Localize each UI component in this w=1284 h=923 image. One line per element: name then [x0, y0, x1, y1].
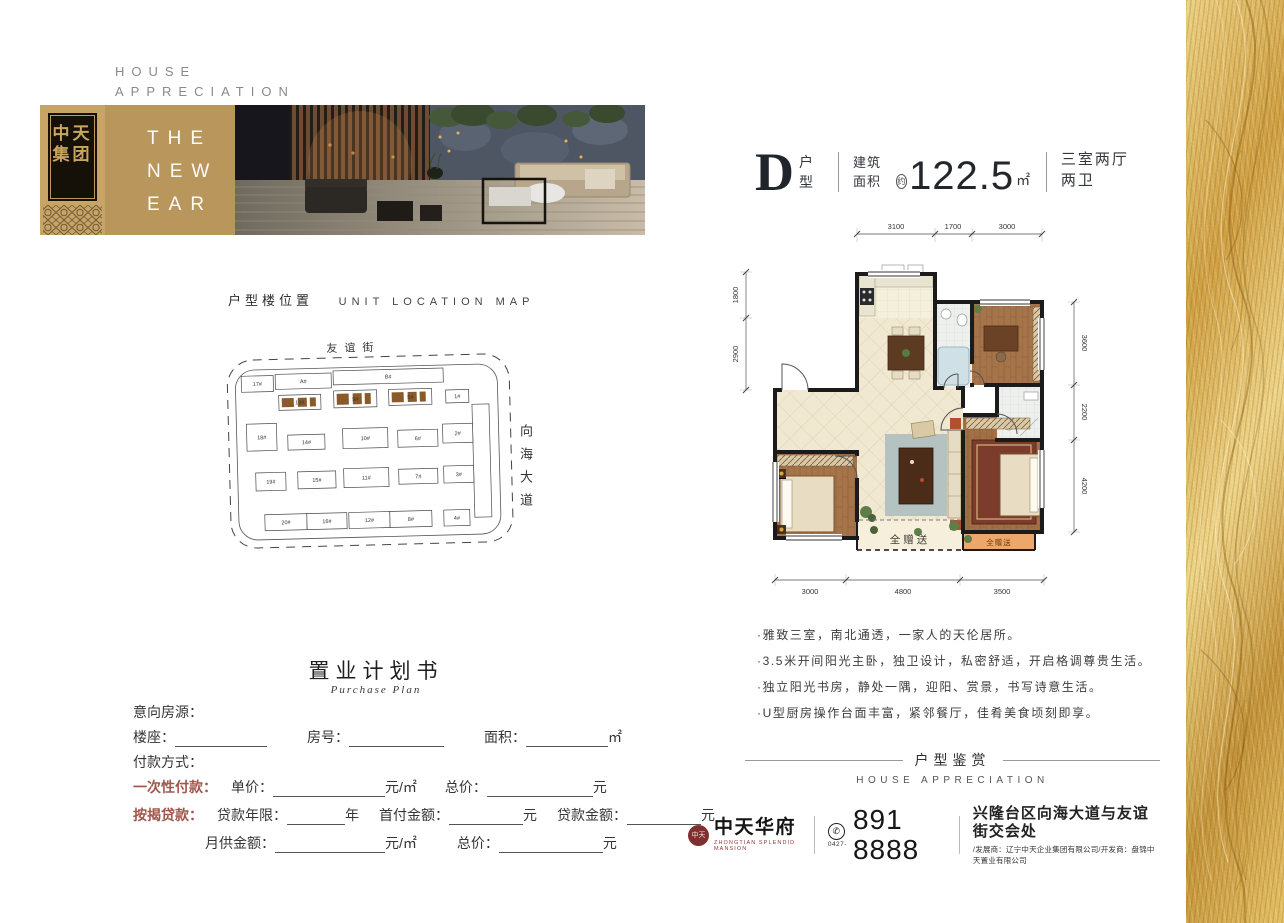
street-right-label: 向海大道	[516, 424, 535, 534]
approx-badge: 约	[896, 174, 907, 189]
street-top-label: 友谊街	[326, 340, 380, 355]
divider-line	[745, 760, 903, 761]
divider	[838, 152, 839, 192]
map-building-label: 18#	[257, 435, 267, 441]
svg-text:4200: 4200	[1080, 478, 1089, 495]
brand-seal: 中天	[688, 825, 709, 846]
down-payment-field	[449, 809, 523, 825]
svg-text:3600: 3600	[1080, 335, 1089, 352]
banner-line1: THE	[147, 128, 212, 150]
phone-number: 891 8888	[853, 805, 946, 865]
kicker-line1: HOUSE	[115, 62, 295, 82]
monthly-label: 月供金额：	[205, 835, 275, 851]
map-building-label: 13#	[295, 400, 305, 406]
map-building-label: A#	[300, 379, 308, 385]
gift-label-center: 全赠送	[890, 533, 931, 546]
brand-logo-seal: 中天 集团	[47, 112, 98, 202]
phone-block: ✆ 0427- 891 8888	[828, 805, 946, 865]
map-building-highlight	[310, 397, 316, 406]
svg-text:1700: 1700	[945, 222, 962, 231]
svg-text:4800: 4800	[895, 587, 912, 596]
yuan-per-sqm: 元/㎡	[385, 779, 417, 795]
address-block: 兴隆台区向海大道与友谊街交会处 /发展商：辽宁中天企业集团有限公司/开发商：盘锦…	[973, 805, 1162, 866]
onetime-row: 一次性付款：单价：元/㎡总价：元	[133, 777, 607, 797]
map-building-label: 2#	[455, 431, 462, 437]
loan-years-label: 贷款年限：	[217, 807, 287, 823]
feature-item: ·独立阳光书房，静处一隅，迎阳、赏景，书写诗意生活。	[757, 674, 1157, 700]
map-title: 户型楼位置 UNIT LOCATION MAP	[228, 290, 534, 309]
gold-swirl-texture	[1186, 0, 1284, 923]
room-label: 房号：	[307, 729, 349, 745]
map-building-highlight	[337, 394, 349, 405]
feature-item: ·U型厨房操作台面丰富，紧邻餐厅，佳肴美食顷刻即享。	[757, 700, 1157, 726]
brand-name-en: ZHONGTIAN SPLENDID MANSION	[714, 840, 801, 852]
logo-chars-top: 中天	[48, 123, 97, 144]
divider-line	[1003, 760, 1161, 761]
unit-header: D 户型 建筑面积 约 122.5 ㎡ 三室两厅两卫	[755, 138, 1135, 194]
map-building-label: 5#	[407, 395, 414, 401]
total-label: 总价：	[445, 779, 487, 795]
yuan-per-sqm: 元/㎡	[385, 835, 417, 851]
area-field	[526, 731, 608, 747]
total-field	[487, 781, 593, 797]
map-building	[472, 404, 492, 517]
svg-text:2900: 2900	[731, 346, 740, 363]
map-building-label: 12#	[365, 518, 375, 524]
unit-letter: D	[755, 150, 794, 194]
area-value: 122.5	[909, 158, 1014, 194]
svg-text:3000: 3000	[802, 587, 819, 596]
map-building-label: 7#	[415, 474, 422, 480]
payment-row: 付款方式：	[133, 752, 203, 772]
area-code: 0427-	[828, 841, 847, 848]
appreciation-divider: 户型鉴赏 HOUSE APPRECIATION	[745, 750, 1160, 786]
phone-icon: ✆	[828, 823, 845, 840]
unit-row: 楼座：房号：面积：㎡	[133, 727, 622, 747]
svg-text:3100: 3100	[888, 222, 905, 231]
yuan-suffix: 元	[603, 835, 617, 851]
monthly-field	[275, 837, 385, 853]
onetime-label: 一次性付款：	[133, 779, 217, 795]
map-building-label: 10#	[361, 436, 371, 442]
map-building-label: 1#	[454, 394, 461, 400]
map-building-highlight	[392, 392, 404, 402]
purchase-plan-subtitle: Purchase Plan	[130, 684, 622, 696]
svg-text:1800: 1800	[731, 287, 740, 304]
total-label: 总价：	[457, 835, 499, 851]
kicker-title: HOUSE APPRECIATION	[115, 62, 295, 102]
unit-type-label: 户型	[799, 152, 822, 192]
the-new-ear-banner: THE NEW EAR	[105, 105, 235, 235]
map-title-en: UNIT LOCATION MAP	[339, 296, 535, 308]
mortgage-label: 按揭贷款：	[133, 807, 203, 823]
gift-label-right: 全赠送	[986, 537, 1012, 547]
svg-text:3500: 3500	[994, 587, 1011, 596]
map-building-highlight	[420, 391, 426, 401]
intent-label: 意向房源：	[133, 704, 203, 720]
loan-amount-label: 贷款金额：	[557, 807, 627, 823]
unit-price-label: 单价：	[231, 779, 273, 795]
map-building-label: 20#	[281, 520, 291, 526]
unit-price-field	[273, 781, 385, 797]
brand-logo-block: 中天 集团	[40, 105, 105, 235]
svg-text:2200: 2200	[1080, 404, 1089, 421]
mortgage-row: 按揭贷款：贷款年限：年首付金额：元贷款金额：元	[133, 805, 715, 825]
feature-list: ·雅致三室，南北通透，一家人的天伦居所。 ·3.5米开间阳光主卧，独卫设计，私密…	[757, 622, 1157, 726]
contact-divider	[959, 816, 960, 854]
brand-lockup: 中天 中天华府 ZHONGTIAN SPLENDID MANSION	[688, 818, 801, 852]
year-suffix: 年	[345, 807, 359, 823]
payment-label: 付款方式：	[133, 754, 203, 770]
contact-divider	[814, 816, 815, 854]
room-field	[349, 731, 444, 747]
map-building-label: 19#	[266, 479, 276, 485]
map-building-highlight	[365, 393, 371, 404]
monthly-total-field	[499, 837, 603, 853]
purchase-plan-title: 置业计划书	[130, 655, 622, 685]
map-building-label: 16#	[322, 519, 332, 525]
map-buildings: 17#A#B#13#9#5#1#18#14#10#6#2#19#15#11#7#…	[241, 367, 475, 531]
yuan-suffix: 元	[593, 779, 607, 795]
brand-name-cn: 中天华府	[714, 818, 801, 838]
svg-text:3000: 3000	[999, 222, 1016, 231]
banner-line2: NEW	[147, 161, 218, 183]
down-payment-label: 首付金额：	[379, 807, 449, 823]
banner-line3: EAR	[147, 194, 213, 216]
yuan-suffix: 元	[523, 807, 537, 823]
floorplan-drawing: 全赠送 全赠送	[722, 212, 1132, 612]
sqm-suffix: ㎡	[608, 729, 622, 745]
map-building-label: 3#	[456, 472, 463, 478]
map-building-label: B#	[385, 374, 393, 380]
feature-item: ·3.5米开间阳光主卧，独卫设计，私密舒适，开启格调尊贵生活。	[757, 648, 1157, 674]
map-building-label: 14#	[302, 440, 312, 446]
site-map: 友谊街 17#A#B#13#9#5#1#18#14#10#6#2#19#15#1…	[226, 336, 526, 550]
kicker-line2: APPRECIATION	[115, 82, 295, 102]
contact-bar: 中天 中天华府 ZHONGTIAN SPLENDID MANSION ✆ 042…	[688, 806, 1162, 864]
monthly-row: 月供金额：元/㎡总价：元	[205, 833, 617, 853]
room-config: 三室两厅两卫	[1061, 148, 1135, 190]
loan-years-field	[287, 809, 345, 825]
appreciation-cn: 户型鉴赏	[915, 750, 991, 770]
map-building-label: 4#	[454, 516, 461, 522]
area-field-label: 面积：	[484, 729, 526, 745]
hero-photo	[235, 105, 645, 235]
map-building-label: 6#	[415, 436, 422, 442]
map-building-highlight	[282, 398, 294, 407]
feature-item: ·雅致三室，南北通透，一家人的天伦居所。	[757, 622, 1157, 648]
map-building-label: 11#	[362, 475, 372, 481]
map-building-label: 8#	[408, 517, 415, 523]
building-label: 楼座：	[133, 729, 175, 745]
area-label: 建筑面积	[853, 152, 894, 190]
appreciation-en: HOUSE APPRECIATION	[745, 775, 1160, 786]
divider	[1046, 152, 1047, 192]
developers: /发展商：辽宁中天企业集团有限公司/开发商：盘锦中天置业有限公司	[973, 844, 1162, 866]
map-building-label: 17#	[253, 382, 263, 388]
address: 兴隆台区向海大道与友谊街交会处	[973, 805, 1162, 841]
map-building-label: 15#	[312, 478, 322, 484]
map-building-label: 9#	[352, 397, 359, 403]
map-title-cn: 户型楼位置	[228, 293, 313, 308]
building-field	[175, 731, 267, 747]
area-unit: ㎡	[1016, 170, 1030, 190]
gold-texture-panel	[1186, 0, 1284, 923]
logo-chars-bottom: 集团	[48, 144, 97, 165]
intent-row: 意向房源：	[133, 702, 203, 722]
lattice-pattern	[40, 205, 105, 235]
